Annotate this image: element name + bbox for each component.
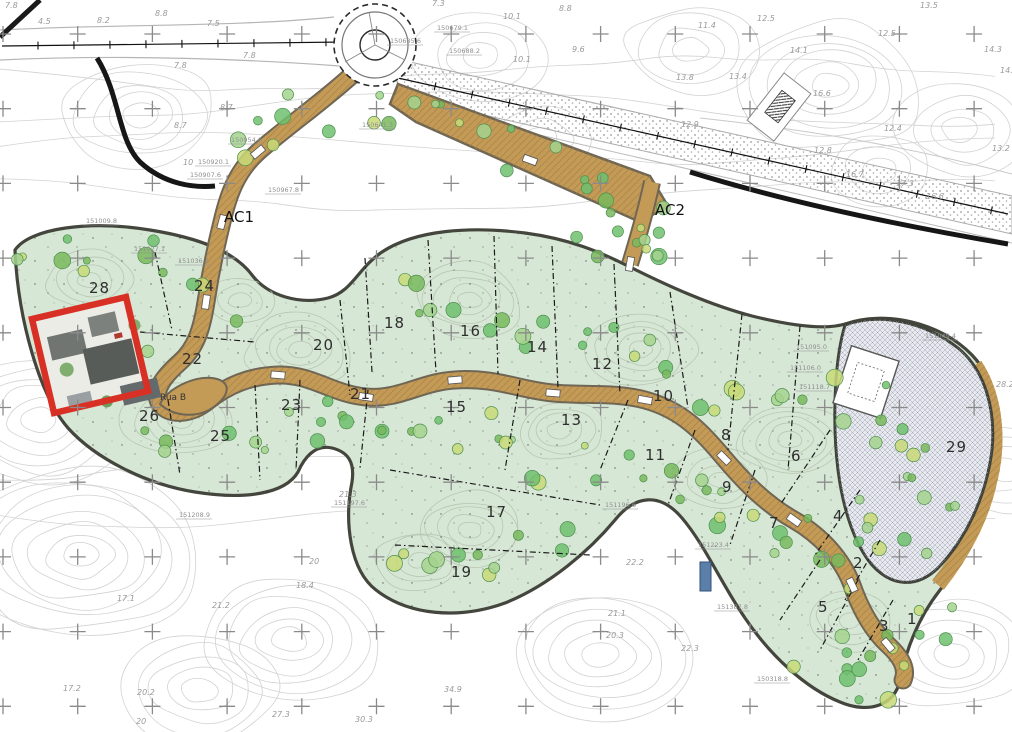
tree-icon — [798, 395, 808, 405]
elevation-label: 11.4 — [698, 21, 716, 30]
tree-icon — [842, 648, 852, 658]
lot-number-label: 26 — [139, 407, 160, 425]
tree-icon — [775, 389, 789, 403]
elevation-label: 10.1 — [513, 55, 531, 64]
elevation-label: 20.2 — [137, 688, 155, 697]
coordinate-label: 151387.8 — [717, 603, 748, 611]
tree-icon — [855, 495, 864, 504]
tree-icon — [507, 125, 514, 132]
tree-icon — [899, 661, 908, 670]
tree-icon — [376, 91, 384, 99]
area-label: AC2 — [655, 201, 685, 219]
elevation-label: 12.8 — [814, 146, 832, 155]
tree-icon — [446, 302, 461, 317]
elevation-label: 27.3 — [272, 710, 290, 719]
tree-icon — [606, 208, 615, 217]
site-plan: 150685.6150679.1150688.2150641.3150954.6… — [0, 0, 1012, 732]
tree-icon — [597, 173, 608, 184]
elevation-label: 8.2 — [97, 16, 110, 25]
tree-icon — [261, 446, 268, 453]
tree-icon — [339, 415, 353, 429]
tree-icon — [921, 444, 930, 453]
elevation-label: 17.3 — [896, 179, 914, 188]
tree-icon — [322, 125, 335, 138]
lot-number-label: 10 — [653, 387, 674, 405]
elevation-label: 13.5 — [920, 1, 938, 10]
lot-number-label: 21 — [350, 385, 371, 403]
tree-icon — [624, 450, 634, 460]
tree-icon — [387, 555, 403, 571]
elevation-label: 14.1 — [790, 46, 808, 55]
lot-number-label: 17 — [486, 503, 507, 521]
tree-icon — [432, 100, 440, 108]
tree-icon — [591, 250, 604, 263]
elevation-label: 20 — [309, 557, 319, 566]
tree-icon — [159, 445, 171, 457]
tree-icon — [524, 470, 540, 486]
elevation-label: 8.8 — [559, 4, 572, 13]
tree-icon — [876, 415, 887, 426]
tree-icon — [584, 328, 592, 336]
coordinate-label: 150954.6 — [231, 136, 262, 144]
elevation-label: 12.4 — [884, 124, 902, 133]
tree-icon — [429, 552, 445, 568]
lot-number-label: 14 — [527, 338, 548, 356]
tree-icon — [787, 660, 800, 673]
tree-icon — [629, 351, 640, 362]
coordinate-label: 150641.3 — [362, 121, 393, 129]
tree-icon — [644, 334, 656, 346]
coordinate-label: 151208.9 — [179, 511, 210, 519]
tree-icon — [237, 150, 253, 166]
tree-icon — [571, 231, 583, 243]
elevation-label: 21.2 — [212, 601, 230, 610]
tree-icon — [581, 176, 589, 184]
tree-icon — [142, 345, 154, 357]
tree-icon — [408, 275, 424, 291]
lot-number-label: 19 — [451, 563, 472, 581]
lot-number-label: 22 — [182, 350, 203, 368]
tree-icon — [870, 436, 883, 449]
lot-number-label: 20 — [313, 336, 334, 354]
elevation-label: 14.3 — [984, 45, 1002, 54]
tree-icon — [282, 89, 293, 100]
coordinate-label: 150688.2 — [449, 47, 480, 55]
tree-icon — [435, 417, 443, 425]
elevation-label: 8.7 — [220, 103, 234, 112]
elevation-label: 8.7 — [174, 121, 188, 130]
tree-icon — [836, 414, 852, 430]
tree-icon — [578, 341, 587, 350]
coordinate-label: 151223.4 — [698, 541, 729, 549]
elevation-label: 10.1 — [503, 12, 521, 21]
tree-icon — [770, 548, 779, 557]
lot-number-label: 12 — [592, 355, 613, 373]
tree-icon — [951, 501, 960, 510]
elevation-label: 16.6 — [926, 192, 944, 201]
tree-icon — [862, 522, 873, 533]
lot-number-label: 15 — [446, 398, 467, 416]
coordinate-label: 150318.8 — [757, 675, 788, 683]
tree-icon — [664, 464, 679, 479]
tree-icon — [254, 116, 263, 125]
tree-icon — [652, 250, 663, 261]
lot-number-label: 28 — [89, 279, 110, 297]
station-marker — [546, 389, 561, 397]
tree-icon — [455, 119, 463, 127]
coordinate-label: 151009.8 — [86, 217, 117, 225]
tree-icon — [413, 424, 427, 438]
blue-marker — [700, 562, 711, 591]
lot-number-label: 24 — [194, 277, 215, 295]
elevation-label: 7.3 — [432, 0, 445, 8]
tree-icon — [581, 442, 588, 449]
coordinate-label: 151049.4 — [925, 332, 956, 340]
tree-icon — [702, 486, 711, 495]
coordinate-label: 151197.6 — [334, 499, 365, 507]
elevation-label: 9.6 — [572, 45, 585, 54]
tree-icon — [882, 381, 890, 389]
coordinate-label: 151095.0 — [796, 343, 827, 351]
tree-icon — [728, 384, 744, 400]
tree-icon — [581, 183, 592, 194]
tree-icon — [555, 544, 568, 557]
coordinate-label: 151118.7 — [799, 383, 830, 391]
station-marker — [448, 376, 463, 384]
station-marker — [271, 371, 286, 379]
elevation-label: 7.5 — [207, 19, 220, 28]
coordinate-label: 151196.6 — [605, 501, 636, 509]
tree-icon — [250, 436, 262, 448]
lot-number-label: 23 — [281, 396, 302, 414]
tree-icon — [653, 227, 664, 238]
tree-icon — [921, 548, 932, 559]
tree-icon — [159, 268, 168, 277]
tree-icon — [141, 427, 149, 435]
elevation-label: 13.8 — [676, 73, 694, 82]
tree-icon — [865, 651, 876, 662]
street-name-label: Rua B — [160, 393, 186, 403]
tree-icon — [696, 474, 709, 487]
tree-icon — [709, 405, 720, 416]
tree-icon — [416, 309, 424, 317]
coordinate-label: 150967.8 — [268, 186, 299, 194]
elevation-label: 28.2 — [996, 380, 1012, 389]
lot-number-label: 25 — [210, 427, 231, 445]
tree-icon — [640, 475, 647, 482]
coordinate-label: 150907.6 — [190, 171, 221, 179]
tree-icon — [852, 662, 867, 677]
tree-icon — [424, 303, 437, 316]
lot-number-label: 16 — [460, 322, 481, 340]
tree-icon — [855, 696, 863, 704]
elevation-label: 20 — [136, 717, 146, 726]
tree-icon — [513, 530, 523, 540]
coordinate-label: 151106.0 — [790, 364, 821, 372]
lot-number-label: 6 — [791, 447, 802, 465]
tree-icon — [275, 108, 291, 124]
lot-number-label: 9 — [722, 478, 733, 496]
tree-icon — [378, 426, 387, 435]
tree-icon — [477, 124, 491, 138]
elevation-label: 20.3 — [606, 631, 624, 640]
tree-icon — [78, 265, 90, 277]
tree-icon — [310, 434, 325, 449]
tree-icon — [895, 440, 908, 453]
elevation-label: 16.6 — [813, 89, 831, 98]
area-label: AC1 — [224, 208, 254, 226]
lot-number-label: 13 — [561, 411, 582, 429]
elevation-label: 8.8 — [155, 9, 168, 18]
elevation-label: 21.3 — [339, 490, 357, 499]
tree-icon — [639, 234, 650, 245]
tree-icon — [230, 315, 243, 328]
elevation-label: 4.5 — [38, 17, 51, 26]
tree-icon — [537, 315, 550, 328]
elevation-label: 14.6 — [1000, 66, 1012, 75]
coordinate-label: 150685.6 — [390, 37, 421, 45]
elevation-label: 17.2 — [63, 684, 81, 693]
tree-icon — [897, 424, 908, 435]
tree-icon — [322, 396, 333, 407]
tree-icon — [907, 448, 921, 462]
elevation-label: 13.2 — [992, 144, 1010, 153]
elevation-label: 13.4 — [729, 72, 747, 81]
tree-icon — [452, 444, 463, 455]
tree-icon — [483, 324, 497, 338]
tree-icon — [835, 629, 850, 644]
lot-number-label: 29 — [946, 438, 967, 456]
tree-icon — [939, 633, 952, 646]
tree-icon — [692, 400, 708, 416]
tree-icon — [560, 522, 575, 537]
elevation-label: 16.7 — [846, 170, 865, 179]
elevation-label: 18.4 — [296, 581, 314, 590]
tree-icon — [832, 554, 845, 567]
tree-icon — [642, 244, 651, 253]
tree-icon — [917, 491, 931, 505]
station-marker — [202, 295, 211, 310]
lot-number-label: 7 — [769, 514, 780, 532]
coordinate-label: 151027.1 — [134, 245, 165, 253]
tree-icon — [898, 533, 912, 547]
elevation-label: 12.5 — [878, 29, 896, 38]
elevation-label: 12.5 — [757, 14, 775, 23]
lot-number-label: 5 — [818, 598, 829, 616]
lot-number-label: 8 — [721, 426, 732, 444]
tree-icon — [676, 495, 685, 504]
tree-icon — [489, 562, 500, 573]
tree-icon — [451, 548, 465, 562]
lot-number-label: 4 — [833, 507, 844, 525]
tree-icon — [63, 235, 72, 244]
elevation-label: 7.8 — [5, 1, 18, 10]
elevation-label: 17.1 — [117, 594, 135, 603]
lot-number-label: 11 — [645, 446, 666, 464]
elevation-label: 22.3 — [681, 644, 699, 653]
tree-icon — [747, 509, 759, 521]
tree-icon — [915, 630, 924, 639]
tree-icon — [473, 550, 483, 560]
elevation-label: 10 — [183, 158, 193, 167]
lot-number-label: 2 — [853, 554, 864, 572]
tree-icon — [908, 474, 916, 482]
tree-icon — [316, 417, 325, 426]
tree-icon — [485, 407, 498, 420]
lot-number-label: 18 — [384, 314, 405, 332]
lot-number-label: 1 — [907, 610, 918, 628]
tree-icon — [612, 226, 623, 237]
coordinate-label: 151036.4 — [178, 257, 209, 265]
tree-icon — [854, 537, 864, 547]
lot-number-label: 3 — [879, 617, 890, 635]
tree-icon — [637, 224, 645, 232]
elevation-label: 21.1 — [608, 609, 626, 618]
tree-icon — [408, 96, 421, 109]
site-plan-canvas: 150685.6150679.1150688.2150641.3150954.6… — [0, 0, 1012, 732]
tree-icon — [54, 252, 71, 269]
tree-icon — [948, 603, 957, 612]
elevation-label: 30.3 — [355, 715, 373, 724]
elevation-label: 22.2 — [626, 558, 644, 567]
elevation-label: 7.8 — [174, 61, 187, 70]
tree-icon — [11, 254, 23, 266]
tree-icon — [804, 514, 812, 522]
coordinate-label: 150679.1 — [437, 24, 468, 32]
elevation-label: 7.8 — [243, 51, 256, 60]
coordinate-label: 150920.1 — [198, 158, 229, 166]
tree-icon — [598, 193, 613, 208]
tree-icon — [267, 139, 279, 151]
tree-icon — [550, 141, 562, 153]
tree-icon — [662, 370, 670, 378]
tree-icon — [500, 164, 513, 177]
tree-icon — [780, 536, 792, 548]
elevation-label: 12.9 — [681, 120, 699, 129]
elevation-label: 34.9 — [444, 685, 462, 694]
tree-icon — [715, 512, 726, 523]
